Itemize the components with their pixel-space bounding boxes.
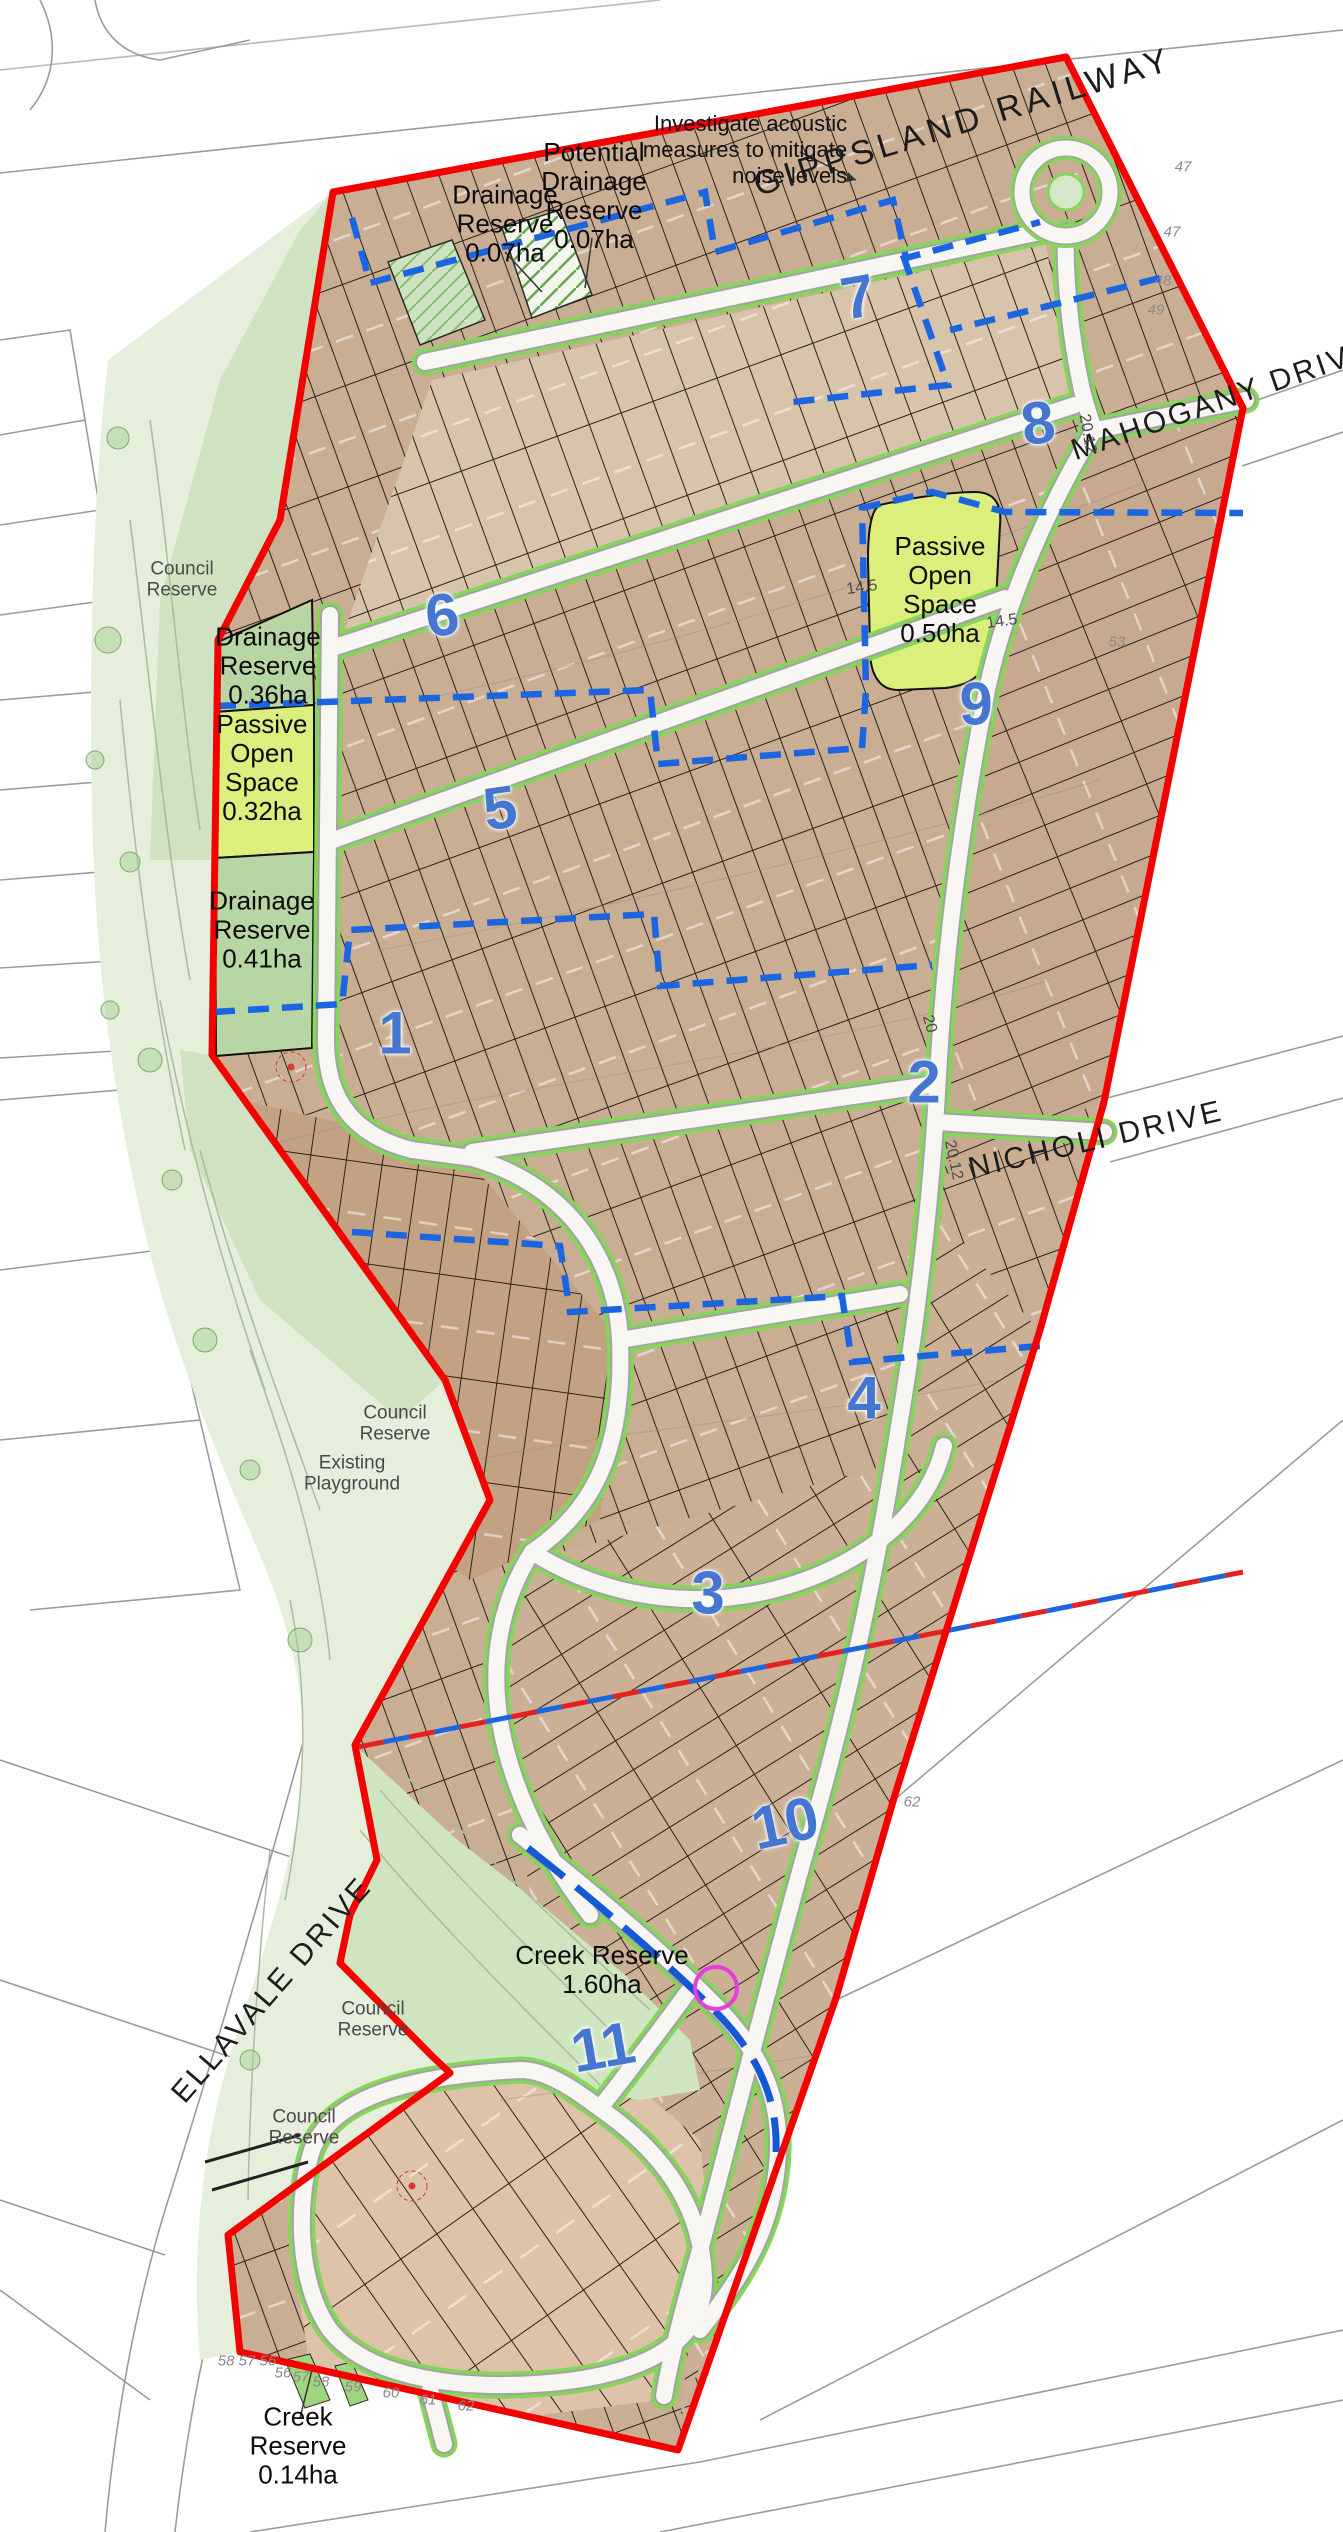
survey-mark-47b: 47 (1164, 225, 1181, 242)
survey-mark-62-right: 62 (904, 1795, 921, 1812)
dimension-145b: 14.5 (985, 611, 1018, 633)
survey-mark-61: 61 (420, 2393, 437, 2410)
stage-number-4: 4 (847, 1364, 880, 1431)
stage-number-3: 3 (691, 1559, 724, 1626)
stage-number-10: 10 (745, 1783, 824, 1863)
dimension-2012b: 20.12 (940, 1139, 966, 1182)
survey-mark-53: 53 (1109, 635, 1126, 652)
survey-mark-49: 49 (1148, 303, 1165, 320)
subdivision-masterplan: Investigate acoustic measures to mitigat… (0, 0, 1343, 2532)
survey-mark-57: 57 (293, 2370, 310, 2387)
street-label-ellavale-drive: ELLAVALE DRIVE (165, 1870, 379, 2109)
street-label-nicholi-drive: NICHOLI DRIVE (965, 1094, 1227, 1185)
drainage-reserve-041-label: Drainage Reserve 0.41ha (209, 886, 315, 973)
stage-number-11: 11 (566, 2008, 640, 2085)
stage-number-2: 2 (907, 1048, 940, 1115)
dimension-145a: 14.5 (845, 577, 878, 599)
drainage-reserve-007-label: Drainage Reserve 0.07ha (452, 180, 558, 267)
existing-playground-label: Existing Playground (304, 1453, 400, 1496)
survey-mark-60: 60 (383, 2386, 400, 2403)
survey-mark-47a: 47 (1175, 160, 1192, 177)
creek-reserve-160-label: Creek Reserve 1.60ha (515, 1941, 688, 1999)
survey-mark-cluster: 58 57 56 (218, 2354, 276, 2371)
survey-mark-59: 59 (345, 2380, 362, 2397)
council-reserve-label-mid: Council Reserve (360, 1403, 431, 1446)
dimension-20: 20 (918, 1013, 940, 1035)
passive-open-space-050-label: Passive Open Space 0.50ha (894, 532, 985, 648)
survey-mark-58: 58 (313, 2375, 330, 2392)
council-reserve-label-sw: Council Reserve (269, 2107, 340, 2150)
stage-number-7: 7 (836, 261, 881, 333)
survey-mark-56: 56 (275, 2366, 292, 2383)
stage-number-8: 8 (1017, 387, 1059, 458)
stage-number-9: 9 (959, 670, 992, 737)
stage-number-6: 6 (421, 579, 463, 650)
survey-mark-62-bottom: 62 (458, 2399, 475, 2416)
stage-number-5: 5 (479, 772, 521, 843)
creek-reserve-014-label: Creek Reserve 0.14ha (250, 2402, 347, 2489)
street-label-mahogany-drive: MAHOGANY DRIVE (1067, 333, 1343, 468)
council-reserve-label-ellavale: Council Reserve (338, 1999, 409, 2042)
stage-number-1: 1 (378, 999, 411, 1066)
survey-mark-48: 48 (1155, 274, 1172, 291)
passive-open-space-032-label: Passive Open Space 0.32ha (216, 710, 307, 826)
map-labels: Investigate acoustic measures to mitigat… (0, 0, 1343, 2532)
council-reserve-label-nw: Council Reserve (147, 559, 218, 602)
drainage-reserve-036-label: Drainage Reserve 0.36ha (215, 622, 321, 709)
